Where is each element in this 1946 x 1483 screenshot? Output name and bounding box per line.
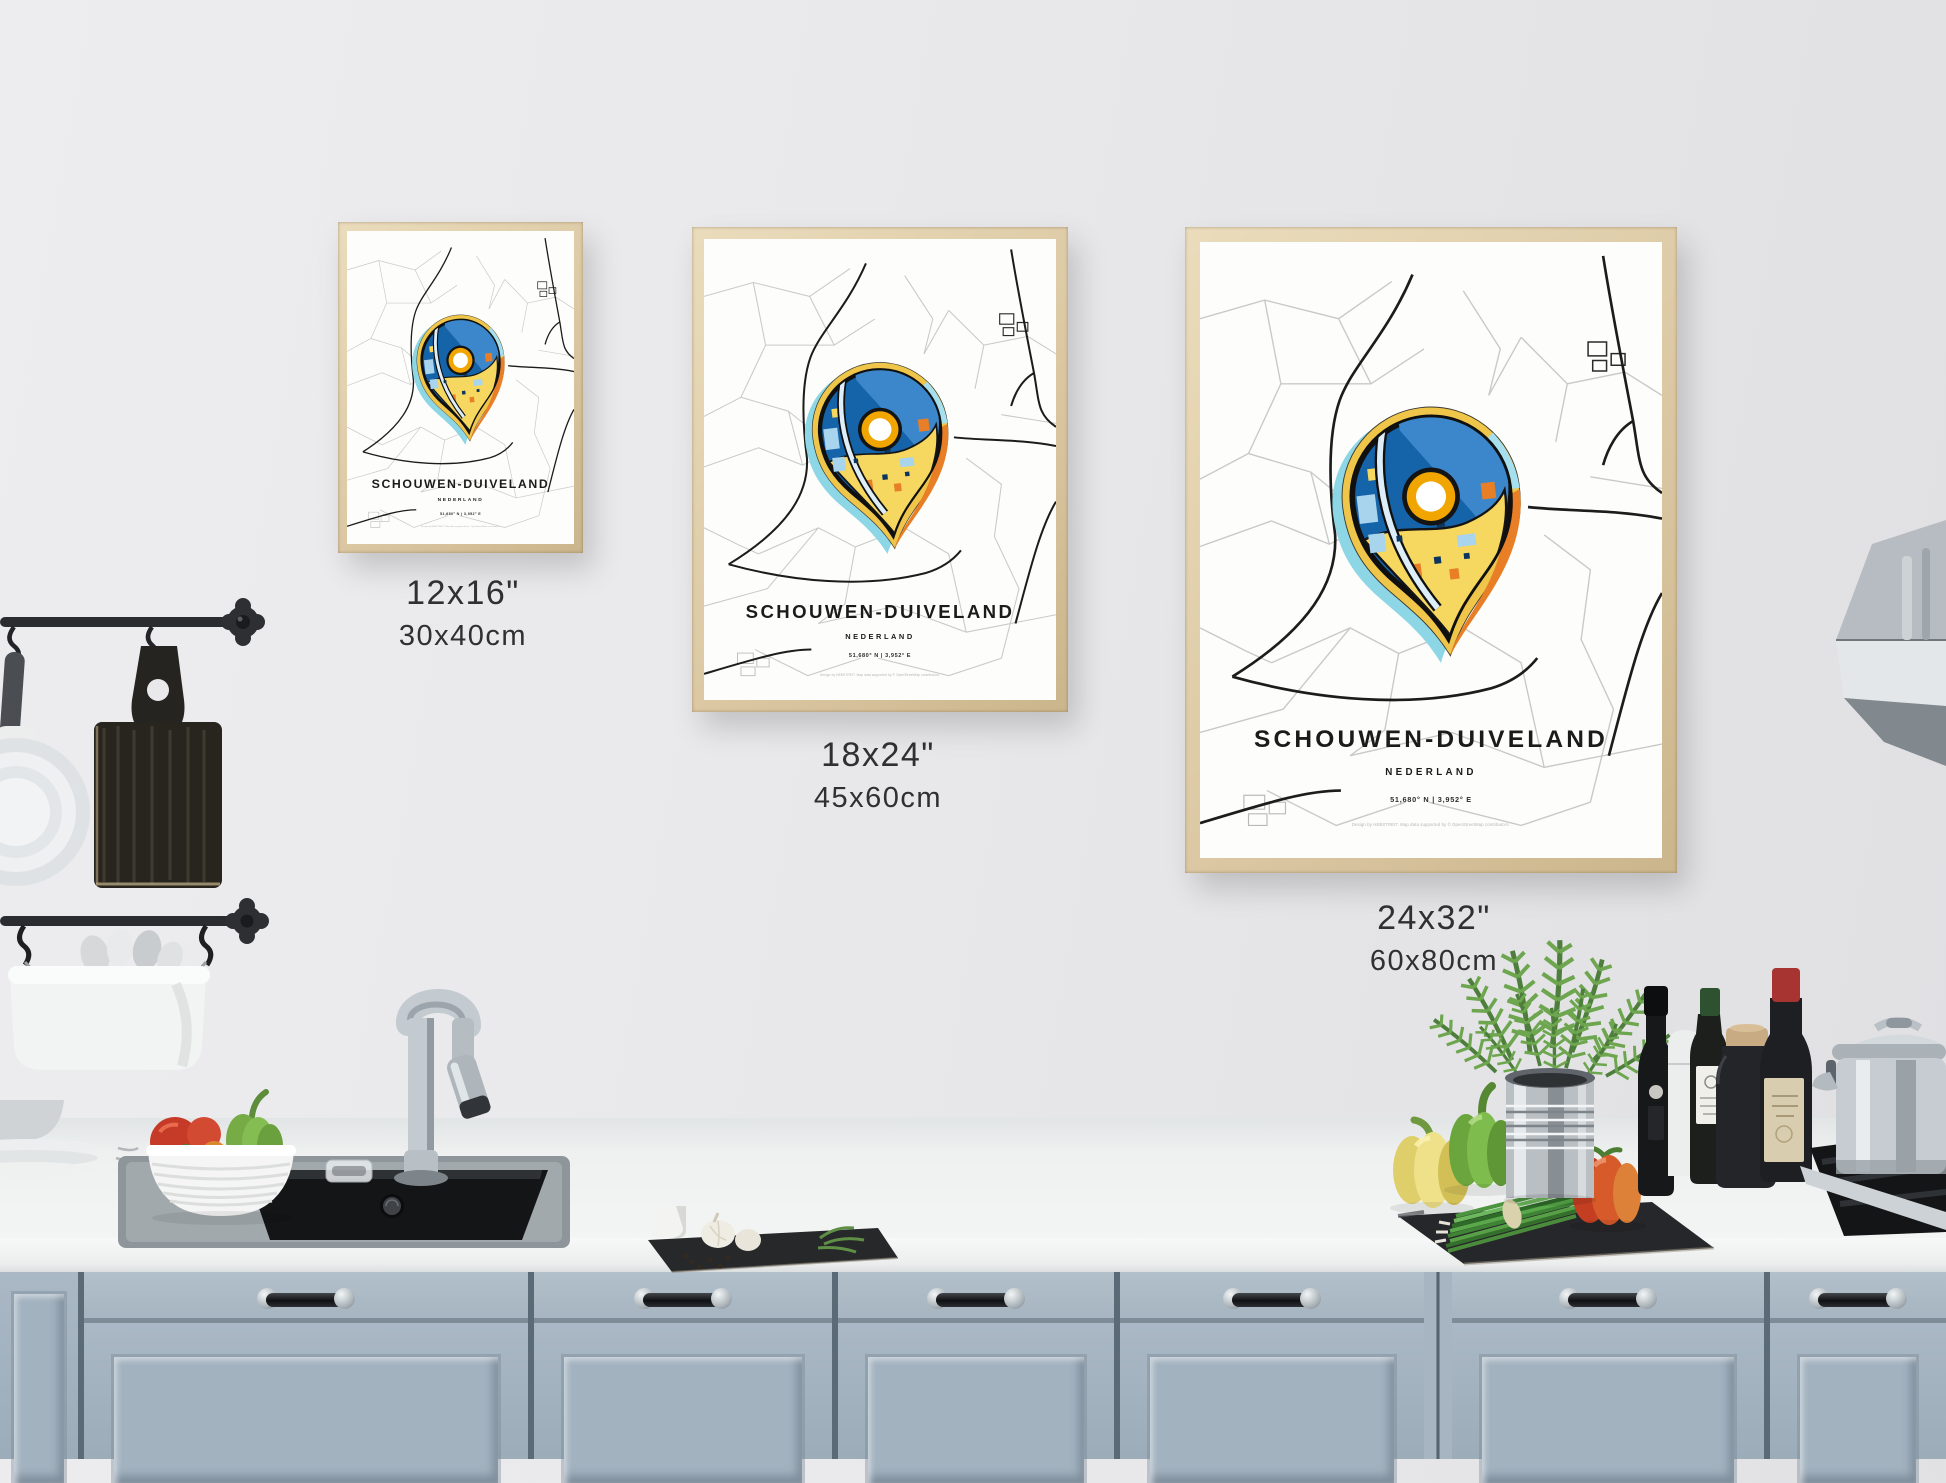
cabinet-door — [1770, 1323, 1946, 1459]
poster-title: SCHOUWEN-DUIVELAND — [746, 601, 1015, 623]
size-inches: 24x32" — [1370, 899, 1498, 938]
poster-subtitle: NEDERLAND — [1385, 767, 1477, 778]
size-label-24x32: 24x32" 60x80cm — [1370, 899, 1498, 978]
poster-paper: SCHOUWEN-DUIVELAND NEDERLAND 51,680° N |… — [1200, 242, 1662, 858]
cabinet-drawer — [1452, 1272, 1764, 1323]
size-cm: 45x60cm — [814, 782, 942, 815]
countertop-surface — [0, 1118, 1946, 1240]
drawer-handle — [634, 1288, 732, 1310]
size-inches: 12x16" — [399, 574, 527, 613]
poster-coordinates: 51,680° N | 3,952° E — [1390, 795, 1472, 804]
cabinet-sink-unit — [84, 1272, 528, 1459]
drawer-handle — [1223, 1288, 1321, 1310]
poster-subtitle: NEDERLAND — [845, 632, 914, 641]
poster-paper: SCHOUWEN-DUIVELAND NEDERLAND 51,680° N |… — [347, 231, 574, 544]
poster-title: SCHOUWEN-DUIVELAND — [372, 477, 550, 491]
cabinet-drawer — [1120, 1272, 1424, 1323]
poster-title: SCHOUWEN-DUIVELAND — [1254, 726, 1608, 754]
cabinet-drawer — [84, 1272, 528, 1323]
poster-credit: Design by HEBSTREIT. Map data supported … — [820, 673, 940, 677]
cabinet-unit — [1770, 1272, 1946, 1459]
drawer-handle — [927, 1288, 1025, 1310]
cabinet-door — [1452, 1323, 1764, 1459]
cabinet-door — [838, 1323, 1114, 1459]
poster-credit: Design by HEBSTREIT. Map data supported … — [1352, 822, 1510, 827]
cabinet-unit — [534, 1272, 832, 1459]
poster-coordinates: 51,680° N | 3,952° E — [440, 512, 481, 516]
cabinet-door — [534, 1323, 832, 1459]
cabinet-stile — [1424, 1272, 1452, 1459]
cabinet-unit — [1120, 1272, 1424, 1459]
cabinet-door — [84, 1323, 528, 1459]
poster-18x24: SCHOUWEN-DUIVELAND NEDERLAND 51,680° N |… — [692, 227, 1068, 712]
size-cm: 30x40cm — [399, 620, 527, 653]
countertop-front-edge — [0, 1238, 1946, 1274]
drawer-handle — [1809, 1288, 1907, 1310]
cabinet-drawer — [1770, 1272, 1946, 1323]
poster-coordinates: 51,680° N | 3,952° E — [849, 653, 911, 659]
poster-subtitle: NEDERLAND — [438, 498, 484, 503]
size-inches: 18x24" — [814, 736, 942, 775]
cabinet-door — [1120, 1323, 1424, 1459]
size-label-12x16: 12x16" 30x40cm — [399, 574, 527, 653]
drawer-handle — [1559, 1288, 1657, 1310]
cabinet-unit — [1452, 1272, 1764, 1459]
cabinet-drawer — [534, 1272, 832, 1323]
size-label-18x24: 18x24" 45x60cm — [814, 736, 942, 815]
poster-24x32: SCHOUWEN-DUIVELAND NEDERLAND 51,680° N |… — [1185, 227, 1677, 873]
map-artwork — [704, 239, 1056, 700]
cabinet-unit — [838, 1272, 1114, 1459]
poster-credit: Design by HEBSTREIT. Map data supported … — [421, 526, 500, 528]
map-artwork — [1200, 242, 1662, 858]
cabinet-panel-sliver — [0, 1272, 78, 1459]
cabinet-door — [0, 1272, 78, 1459]
poster-12x16: SCHOUWEN-DUIVELAND NEDERLAND 51,680° N |… — [338, 222, 583, 553]
size-cm: 60x80cm — [1370, 945, 1498, 978]
cabinet-drawer — [838, 1272, 1114, 1323]
drawer-handle — [257, 1288, 355, 1310]
poster-paper: SCHOUWEN-DUIVELAND NEDERLAND 51,680° N |… — [704, 239, 1056, 700]
kitchen-cabinets — [0, 1272, 1946, 1459]
